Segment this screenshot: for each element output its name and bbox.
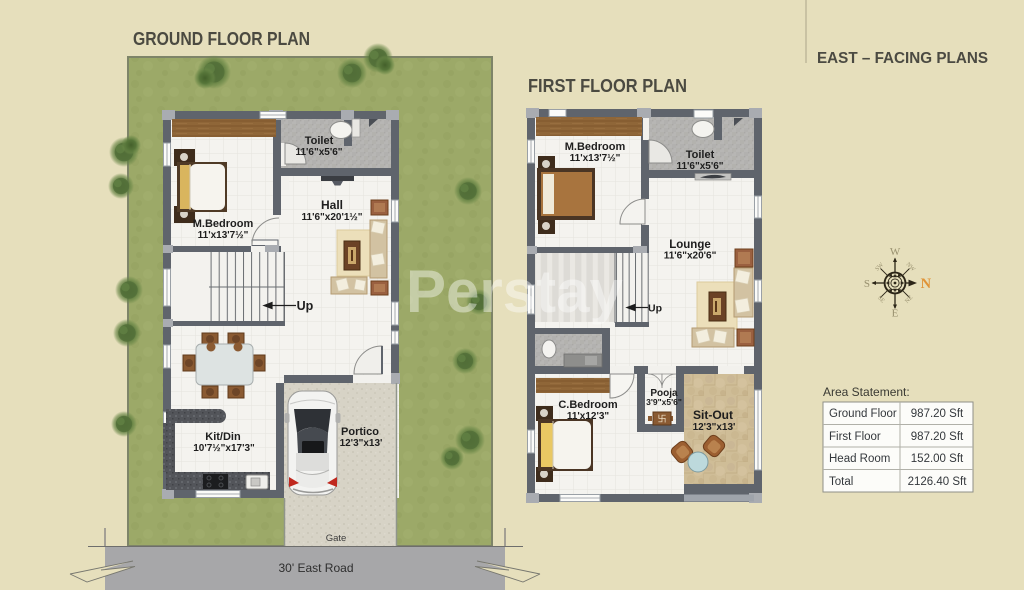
svg-text:W: W [890,246,901,258]
svg-text:C.Bedroom: C.Bedroom [558,399,618,411]
svg-text:2126.40 Sft: 2126.40 Sft [908,476,968,488]
svg-text:Portico: Portico [341,426,379,438]
svg-text:Sit-Out: Sit-Out [693,408,733,422]
svg-text:Hall: Hall [321,198,343,212]
svg-text:SE: SE [876,295,885,304]
svg-text:12'3"x13': 12'3"x13' [340,438,383,449]
svg-text:Ground Floor: Ground Floor [829,408,897,420]
svg-text:S: S [864,278,870,290]
svg-text:M.Bedroom: M.Bedroom [565,141,626,153]
svg-text:E: E [892,308,899,320]
svg-text:10'7½"x17'3": 10'7½"x17'3" [193,443,255,454]
svg-text:3'9"x5'6": 3'9"x5'6" [646,397,682,407]
svg-text:Up: Up [297,299,314,313]
svg-text:11'x13'7½": 11'x13'7½" [570,153,621,164]
svg-text:987.20 Sft: 987.20 Sft [911,431,964,443]
svg-text:152.00 Sft: 152.00 Sft [911,453,964,465]
svg-text:11'x12'3": 11'x12'3" [567,411,610,422]
svg-text:11'6"x20'6": 11'6"x20'6" [664,251,717,262]
svg-text:M.Bedroom: M.Bedroom [193,218,254,230]
svg-text:Head Room: Head Room [829,453,890,465]
svg-text:Toilet: Toilet [305,135,334,147]
svg-text:11'x13'7½": 11'x13'7½" [198,230,249,241]
svg-text:12'3"x13': 12'3"x13' [693,422,736,433]
svg-text:SW: SW [874,262,885,273]
svg-text:Perstay: Perstay [406,258,623,325]
svg-text:Area Statement:: Area Statement: [823,385,910,399]
svg-text:11'6"x5'6": 11'6"x5'6" [676,161,723,172]
svg-text:Toilet: Toilet [686,149,715,161]
svg-text:EAST – FACING PLANS: EAST – FACING PLANS [817,50,988,67]
svg-text:Kit/Din: Kit/Din [205,431,241,443]
svg-text:Gate: Gate [326,533,347,544]
svg-text:First Floor: First Floor [829,431,881,443]
svg-text:N: N [921,276,932,292]
svg-text:30' East Road: 30' East Road [278,561,353,575]
svg-text:NE: NE [904,295,914,305]
svg-text:FIRST FLOOR PLAN: FIRST FLOOR PLAN [528,76,687,96]
svg-text:Lounge: Lounge [669,239,711,251]
svg-text:Up: Up [648,303,662,315]
svg-text:11'6"x5'6": 11'6"x5'6" [295,147,342,158]
svg-text:卐: 卐 [657,414,666,424]
svg-text:987.20 Sft: 987.20 Sft [911,408,964,420]
svg-text:Total: Total [829,476,853,488]
svg-text:11'6"x20'1½": 11'6"x20'1½" [302,212,363,223]
svg-text:GROUND FLOOR PLAN: GROUND FLOOR PLAN [133,29,310,49]
